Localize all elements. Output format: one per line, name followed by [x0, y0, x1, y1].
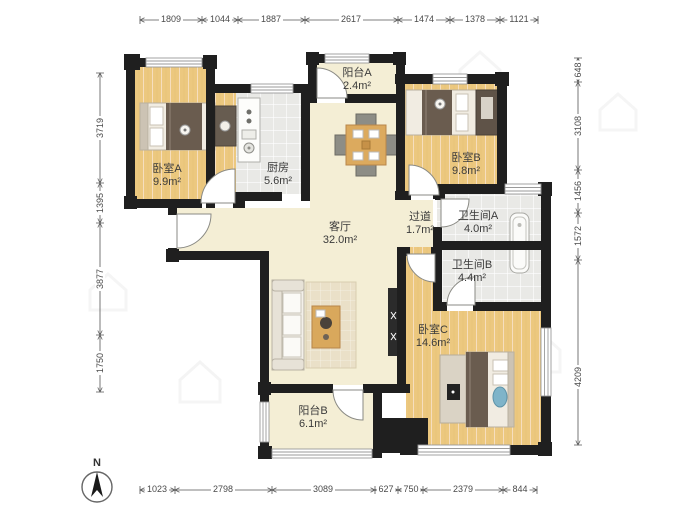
dim-top-4: 2617 — [339, 14, 363, 24]
sofa-icon — [272, 280, 304, 370]
compass-icon — [82, 472, 112, 502]
dim-left-1: 3719 — [95, 116, 105, 140]
bed-c-icon — [440, 352, 514, 427]
dim-left-3: 3877 — [95, 267, 105, 291]
dim-right-3: 1456 — [573, 179, 583, 203]
window-icon — [251, 84, 293, 93]
dim-bottom-7: 844 — [510, 484, 529, 494]
dim-bottom-1: 1023 — [145, 484, 169, 494]
compass-north-label: N — [93, 457, 101, 469]
window-icon — [418, 445, 510, 455]
dim-top-7: 1121 — [507, 14, 530, 24]
dim-top-2: 1044 — [208, 14, 232, 24]
dim-bottom-5: 750 — [401, 484, 420, 494]
dim-top-6: 1378 — [463, 14, 487, 24]
window-icon — [433, 74, 467, 84]
dim-bottom-2: 2798 — [211, 484, 235, 494]
dim-chain-bottom — [140, 486, 537, 494]
dim-bottom-4: 627 — [376, 484, 395, 494]
dim-bottom-3: 3089 — [311, 484, 335, 494]
dim-right-4: 1572 — [573, 224, 583, 248]
kitchen-counter-icon — [238, 98, 260, 162]
bed-a-icon — [140, 103, 215, 150]
dim-right-2: 3108 — [573, 114, 583, 138]
tv-icon — [388, 288, 398, 356]
floor-plan-canvas: 卧室A 9.9m² 厨房 5.6m² 阳台A 2.4m² 卧室B 9.8m² 客… — [0, 0, 680, 510]
window-icon — [325, 54, 369, 63]
dim-right-5: 4209 — [573, 365, 583, 389]
dim-top-3: 1887 — [259, 14, 283, 24]
dim-left-4: 1750 — [95, 351, 105, 375]
coffee-table-icon — [312, 306, 340, 348]
dim-bottom-6: 2379 — [451, 484, 475, 494]
window-icon — [272, 449, 372, 458]
dim-left-2: 1395 — [95, 191, 105, 215]
dim-top-5: 1474 — [412, 14, 436, 24]
cabinet-icon — [215, 106, 236, 146]
window-icon — [260, 402, 269, 442]
window-icon — [541, 328, 551, 396]
window-icon — [505, 184, 541, 194]
dim-top-1: 1809 — [159, 14, 183, 24]
window-icon — [146, 58, 202, 67]
floor-hallway — [397, 200, 433, 247]
bed-b-icon — [406, 90, 498, 135]
dim-right-1: 648 — [573, 60, 583, 79]
